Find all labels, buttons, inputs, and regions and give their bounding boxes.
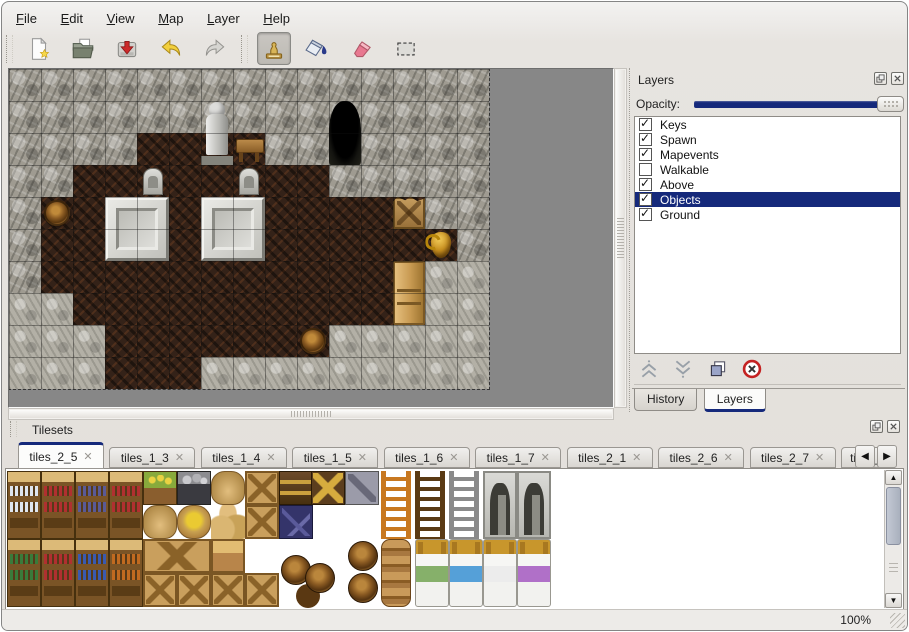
map-tile-wood-floor[interactable] bbox=[169, 197, 201, 229]
canvas-vertical-scrollbar[interactable] bbox=[614, 68, 627, 408]
map-tile-wood-floor[interactable] bbox=[169, 293, 201, 325]
opacity-slider[interactable] bbox=[694, 101, 901, 108]
menu-view-mnemonic: V bbox=[107, 11, 115, 26]
map-tile-wood-floor[interactable] bbox=[169, 165, 201, 197]
map-tile-rock-ground[interactable] bbox=[297, 357, 329, 389]
tileset-tab-bar: tiles_2_5 tiles_1_3 tiles_1_4 tiles_1_5 … bbox=[8, 442, 901, 469]
map-tile-rock-wall[interactable] bbox=[457, 69, 489, 101]
palette-tile-shelf[interactable] bbox=[41, 471, 75, 539]
scrollbar-grip-icon bbox=[889, 563, 898, 575]
map-tile-rock-ground[interactable] bbox=[73, 325, 105, 357]
map-tile-wood-floor[interactable] bbox=[169, 229, 201, 261]
map-tile-wood-floor[interactable] bbox=[169, 133, 201, 165]
menu-file-mnemonic: F bbox=[16, 11, 24, 26]
tab-label: tiles_2_7 bbox=[761, 451, 809, 465]
map-canvas-viewport[interactable] bbox=[8, 68, 614, 408]
close-tab-icon[interactable] bbox=[815, 451, 824, 464]
map-tile-rock-ground[interactable] bbox=[457, 357, 489, 389]
map-tile-wood-floor[interactable] bbox=[233, 261, 265, 293]
map-tile-rock-wall[interactable] bbox=[425, 165, 457, 197]
map-tile-rock-ground[interactable] bbox=[233, 357, 265, 389]
map-tile-wood-floor[interactable] bbox=[41, 229, 73, 261]
close-tab-icon[interactable] bbox=[724, 451, 733, 464]
map-tile-rock-wall[interactable] bbox=[9, 261, 41, 293]
map-tile-wood-floor[interactable] bbox=[105, 325, 137, 357]
palette-tile-crate[interactable] bbox=[177, 573, 211, 607]
map-tile-rock-wall[interactable] bbox=[233, 69, 265, 101]
map-tile-rock-wall[interactable] bbox=[105, 133, 137, 165]
map-tile-rock-wall[interactable] bbox=[265, 69, 297, 101]
map-tile-rock-wall[interactable] bbox=[265, 133, 297, 165]
map-tile-rock-wall[interactable] bbox=[425, 69, 457, 101]
map-tile-wood-floor[interactable] bbox=[265, 325, 297, 357]
map-tile-wood-floor[interactable] bbox=[329, 293, 361, 325]
tab-label: tiles_1_5 bbox=[304, 451, 352, 465]
map-tile-rock-ground[interactable] bbox=[73, 357, 105, 389]
scroll-tabs-left-button[interactable] bbox=[855, 445, 875, 468]
map-tile-rock-wall[interactable] bbox=[9, 101, 41, 133]
map-tile-wood-floor[interactable] bbox=[41, 261, 73, 293]
map-tile-rock-wall[interactable] bbox=[361, 133, 393, 165]
map-tile-wood-floor[interactable] bbox=[361, 293, 393, 325]
map-object-platform[interactable] bbox=[201, 197, 265, 261]
menu-map[interactable]: Map bbox=[148, 8, 193, 29]
scroll-up-button[interactable] bbox=[885, 470, 902, 485]
close-tab-icon[interactable] bbox=[358, 451, 367, 464]
map-object-vase[interactable] bbox=[425, 229, 457, 261]
map-tile-wood-floor[interactable] bbox=[105, 293, 137, 325]
new-file-icon bbox=[26, 36, 52, 62]
map-canvas[interactable] bbox=[9, 69, 489, 389]
layer-visibility-checkbox[interactable] bbox=[639, 178, 652, 191]
map-object-cave[interactable] bbox=[329, 101, 361, 165]
toolbar-drag-handle[interactable] bbox=[241, 35, 248, 63]
palette-tile-bed[interactable] bbox=[415, 539, 449, 607]
map-tile-wood-floor[interactable] bbox=[329, 261, 361, 293]
map-object-table[interactable] bbox=[233, 133, 265, 165]
map-tile-rock-wall[interactable] bbox=[361, 165, 393, 197]
map-tile-rock-wall[interactable] bbox=[9, 165, 41, 197]
map-tile-rock-wall[interactable] bbox=[361, 69, 393, 101]
tileset-tab[interactable]: tiles_2_7 bbox=[750, 447, 836, 468]
palette-tile-crate[interactable] bbox=[245, 505, 279, 539]
close-tab-icon[interactable] bbox=[175, 451, 184, 464]
redo-button[interactable] bbox=[198, 32, 232, 65]
menu-edit[interactable]: Edit bbox=[51, 8, 93, 29]
palette-tile-sackpile[interactable] bbox=[211, 505, 245, 539]
map-tile-wood-floor[interactable] bbox=[73, 293, 105, 325]
map-tile-rock-ground[interactable] bbox=[393, 357, 425, 389]
layer-row[interactable]: Above bbox=[635, 177, 900, 192]
panel-drag-handle[interactable] bbox=[10, 421, 17, 437]
tab-label: tiles_1_3 bbox=[121, 451, 169, 465]
map-tile-rock-ground[interactable] bbox=[361, 357, 393, 389]
tab-label: tiles_1_7 bbox=[487, 451, 535, 465]
map-tile-rock-wall[interactable] bbox=[105, 101, 137, 133]
map-tile-wood-floor[interactable] bbox=[297, 293, 329, 325]
duplicate-layer-button[interactable] bbox=[707, 358, 731, 382]
scroll-down-button[interactable] bbox=[885, 593, 902, 608]
layer-label: Mapevents bbox=[660, 148, 719, 162]
map-tile-rock-wall[interactable] bbox=[9, 197, 41, 229]
map-object-tombstone[interactable] bbox=[233, 165, 265, 197]
map-tile-rock-wall[interactable] bbox=[9, 69, 41, 101]
map-tile-wood-floor[interactable] bbox=[73, 197, 105, 229]
scrollbar-grip-icon bbox=[617, 218, 624, 258]
tab-label: tiles_2_1 bbox=[578, 451, 626, 465]
palette-tile-chestdark[interactable] bbox=[279, 471, 313, 505]
map-tile-rock-wall[interactable] bbox=[41, 133, 73, 165]
map-tile-rock-wall[interactable] bbox=[73, 69, 105, 101]
map-tile-rock-ground[interactable] bbox=[9, 357, 41, 389]
tab-label: tiles_2_6 bbox=[670, 451, 718, 465]
tileset-tab[interactable]: tiles_1_3 bbox=[109, 447, 195, 468]
close-tab-icon[interactable] bbox=[266, 451, 275, 464]
map-tile-rock-wall[interactable] bbox=[457, 133, 489, 165]
palette-tile-bed[interactable] bbox=[517, 539, 551, 607]
menu-file-label: ile bbox=[24, 11, 37, 26]
zoom-level-label: 100% bbox=[840, 613, 871, 627]
map-object-statue[interactable] bbox=[201, 101, 233, 165]
layer-visibility-checkbox[interactable] bbox=[639, 163, 652, 176]
opacity-label: Opacity: bbox=[636, 97, 692, 111]
map-tile-wood-floor[interactable] bbox=[393, 229, 425, 261]
move-layer-down-button[interactable] bbox=[672, 358, 696, 382]
delete-layer-button[interactable] bbox=[741, 358, 765, 382]
map-tile-wood-floor[interactable] bbox=[265, 261, 297, 293]
layer-row[interactable]: Objects bbox=[635, 192, 900, 207]
layer-row[interactable]: Ground bbox=[635, 207, 900, 222]
float-panel-button[interactable] bbox=[870, 420, 883, 433]
map-tile-rock-wall[interactable] bbox=[297, 133, 329, 165]
layer-row[interactable]: Mapevents bbox=[635, 147, 900, 162]
palette-tile-pots[interactable] bbox=[381, 539, 411, 607]
eraser-tool-button[interactable] bbox=[345, 32, 379, 65]
menu-help-label: elp bbox=[273, 11, 290, 26]
palette-tile-crate[interactable] bbox=[245, 573, 279, 607]
map-tile-wood-floor[interactable] bbox=[137, 133, 169, 165]
menu-layer[interactable]: Layer bbox=[197, 8, 250, 29]
map-tile-rock-wall[interactable] bbox=[393, 69, 425, 101]
layer-label: Spawn bbox=[660, 133, 697, 147]
map-object-barrel[interactable] bbox=[41, 197, 73, 229]
map-tile-rock-wall[interactable] bbox=[73, 101, 105, 133]
menu-file[interactable]: File bbox=[6, 8, 47, 29]
map-tile-wood-floor[interactable] bbox=[233, 293, 265, 325]
close-tab-icon[interactable] bbox=[632, 451, 641, 464]
map-tile-rock-wall[interactable] bbox=[457, 197, 489, 229]
undo-icon bbox=[158, 36, 184, 62]
tile-palette-grid bbox=[7, 471, 883, 609]
map-tile-wood-floor[interactable] bbox=[329, 197, 361, 229]
map-tile-wood-floor[interactable] bbox=[361, 261, 393, 293]
palette-tile-shelf[interactable] bbox=[75, 539, 109, 607]
layer-row[interactable]: Keys bbox=[635, 117, 900, 132]
layers-panel-title: Layers bbox=[638, 73, 674, 87]
map-tile-rock-ground[interactable] bbox=[201, 357, 233, 389]
map-tile-rock-ground[interactable] bbox=[41, 293, 73, 325]
close-tab-icon[interactable] bbox=[541, 451, 550, 464]
map-tile-wood-floor[interactable] bbox=[297, 197, 329, 229]
map-tile-rock-ground[interactable] bbox=[9, 293, 41, 325]
palette-tile-chestgold[interactable] bbox=[311, 471, 345, 505]
layer-visibility-checkbox[interactable] bbox=[639, 148, 652, 161]
map-tile-rock-wall[interactable] bbox=[169, 101, 201, 133]
tab-label: History bbox=[647, 392, 684, 406]
map-tile-rock-wall[interactable] bbox=[425, 133, 457, 165]
tab-history[interactable]: History bbox=[634, 389, 697, 411]
window-resize-grip[interactable] bbox=[890, 613, 905, 628]
map-tile-rock-wall[interactable] bbox=[425, 101, 457, 133]
undo-button[interactable] bbox=[154, 32, 188, 65]
map-tile-wood-floor[interactable] bbox=[137, 293, 169, 325]
fill-tool-icon bbox=[305, 36, 331, 62]
map-tile-wood-floor[interactable] bbox=[361, 197, 393, 229]
tileset-tab[interactable]: tiles_1_7 bbox=[475, 447, 561, 468]
map-tile-wood-floor[interactable] bbox=[201, 325, 233, 357]
palette-tile-shelf[interactable] bbox=[109, 539, 143, 607]
map-tile-rock-wall[interactable] bbox=[137, 69, 169, 101]
map-object-crate-broken[interactable] bbox=[393, 197, 425, 229]
map-object-tombstone[interactable] bbox=[137, 165, 169, 197]
map-tile-wood-floor[interactable] bbox=[73, 229, 105, 261]
map-object-platform[interactable] bbox=[105, 197, 169, 261]
map-tile-wood-floor[interactable] bbox=[361, 229, 393, 261]
map-tile-wood-floor[interactable] bbox=[105, 165, 137, 197]
layer-label: Above bbox=[660, 178, 694, 192]
palette-tile-ladder[interactable] bbox=[449, 471, 479, 539]
palette-tile-crate[interactable] bbox=[143, 573, 177, 607]
map-tile-rock-wall[interactable] bbox=[265, 101, 297, 133]
layer-list: Keys Spawn Mapevents Walkable Above Obje… bbox=[634, 116, 901, 354]
palette-tile-planter[interactable] bbox=[143, 471, 177, 505]
tileset-tab[interactable]: tiles_1_5 bbox=[292, 447, 378, 468]
map-tile-rock-ground[interactable] bbox=[265, 357, 297, 389]
map-tile-rock-wall[interactable] bbox=[457, 229, 489, 261]
select-tool-button[interactable] bbox=[389, 32, 423, 65]
map-tile-rock-wall[interactable] bbox=[41, 101, 73, 133]
menu-map-mnemonic: M bbox=[158, 11, 169, 26]
palette-tile-shelf[interactable] bbox=[109, 471, 143, 539]
tab-layers[interactable]: Layers bbox=[704, 389, 766, 412]
map-tile-wood-floor[interactable] bbox=[329, 229, 361, 261]
eraser-tool-icon bbox=[349, 36, 375, 62]
map-tile-rock-ground[interactable] bbox=[41, 325, 73, 357]
map-tile-rock-wall[interactable] bbox=[457, 101, 489, 133]
palette-tile-bed[interactable] bbox=[449, 539, 483, 607]
layer-label: Objects bbox=[660, 193, 701, 207]
save-button[interactable] bbox=[110, 32, 144, 65]
map-tile-rock-wall[interactable] bbox=[105, 69, 137, 101]
fill-tool-button[interactable] bbox=[301, 32, 335, 65]
map-tile-wood-floor[interactable] bbox=[201, 293, 233, 325]
map-tile-rock-ground[interactable] bbox=[41, 357, 73, 389]
select-tool-icon bbox=[393, 36, 419, 62]
map-tile-rock-ground[interactable] bbox=[425, 293, 457, 325]
map-tile-rock-wall[interactable] bbox=[393, 133, 425, 165]
palette-tile-ladder[interactable] bbox=[415, 471, 445, 539]
map-tile-wood-floor[interactable] bbox=[137, 325, 169, 357]
toolbar bbox=[2, 31, 907, 66]
map-tile-rock-wall[interactable] bbox=[457, 165, 489, 197]
layer-visibility-checkbox[interactable] bbox=[639, 118, 652, 131]
map-tile-rock-ground[interactable] bbox=[457, 261, 489, 293]
palette-tile-orecart[interactable] bbox=[177, 471, 211, 505]
save-icon bbox=[114, 36, 140, 62]
map-tile-wood-floor[interactable] bbox=[105, 357, 137, 389]
layers-panel-header: Layers bbox=[634, 70, 905, 90]
map-tile-rock-wall[interactable] bbox=[233, 101, 265, 133]
tileset-tab[interactable]: tiles_1_6 bbox=[384, 447, 470, 468]
open-file-button[interactable] bbox=[66, 32, 100, 65]
map-tile-wood-floor[interactable] bbox=[265, 197, 297, 229]
map-tile-rock-ground[interactable] bbox=[425, 261, 457, 293]
map-tile-wood-floor[interactable] bbox=[105, 261, 137, 293]
map-tile-rock-ground[interactable] bbox=[329, 357, 361, 389]
map-tile-wood-floor[interactable] bbox=[265, 165, 297, 197]
map-tile-rock-wall[interactable] bbox=[201, 69, 233, 101]
map-object-cabinet[interactable] bbox=[393, 261, 425, 325]
palette-tile-barrel2[interactable] bbox=[345, 539, 379, 607]
palette-tile-sackbig[interactable] bbox=[143, 505, 177, 539]
map-tile-rock-wall[interactable] bbox=[297, 69, 329, 101]
tab-label: tiles_1_4 bbox=[212, 451, 260, 465]
scrollbar-grip-icon bbox=[291, 411, 331, 417]
layer-label: Keys bbox=[660, 118, 687, 132]
map-tile-rock-wall[interactable] bbox=[393, 165, 425, 197]
opacity-row: Opacity: bbox=[636, 94, 903, 114]
opacity-slider-handle[interactable] bbox=[877, 96, 904, 112]
map-tile-wood-floor[interactable] bbox=[201, 165, 233, 197]
palette-tile-door[interactable] bbox=[517, 471, 551, 539]
palette-tile-crate[interactable] bbox=[143, 539, 211, 573]
map-tile-wood-floor[interactable] bbox=[233, 325, 265, 357]
map-tile-rock-wall[interactable] bbox=[41, 69, 73, 101]
map-tile-wood-floor[interactable] bbox=[169, 325, 201, 357]
stamp-tool-icon bbox=[261, 36, 287, 62]
tab-label: tiles_2_5 bbox=[29, 450, 77, 464]
map-tile-rock-ground[interactable] bbox=[393, 325, 425, 357]
map-tile-wood-floor[interactable] bbox=[265, 229, 297, 261]
map-tile-rock-ground[interactable] bbox=[425, 325, 457, 357]
tile-palette bbox=[5, 468, 904, 610]
status-bar: 100% bbox=[2, 609, 907, 630]
palette-tile-sackopen[interactable] bbox=[177, 505, 211, 539]
palette-tile-shelf[interactable] bbox=[7, 471, 41, 539]
map-tile-wood-floor[interactable] bbox=[137, 357, 169, 389]
tileset-tab[interactable]: tiles_2_1 bbox=[567, 447, 653, 468]
map-tile-wood-floor[interactable] bbox=[169, 261, 201, 293]
close-tab-icon[interactable] bbox=[83, 450, 92, 463]
map-tile-rock-wall[interactable] bbox=[425, 197, 457, 229]
map-tile-rock-wall[interactable] bbox=[329, 165, 361, 197]
map-tile-wood-floor[interactable] bbox=[297, 229, 329, 261]
map-tile-rock-ground[interactable] bbox=[425, 357, 457, 389]
layer-actions-toolbar bbox=[634, 358, 901, 385]
map-tile-rock-wall[interactable] bbox=[393, 101, 425, 133]
map-tile-wood-floor[interactable] bbox=[73, 261, 105, 293]
move-layer-up-button[interactable] bbox=[638, 358, 662, 382]
canvas-horizontal-scrollbar[interactable] bbox=[8, 408, 614, 420]
map-tile-rock-ground[interactable] bbox=[9, 325, 41, 357]
scrollbar-thumb[interactable] bbox=[886, 487, 901, 545]
map-tile-rock-wall[interactable] bbox=[137, 101, 169, 133]
map-tile-rock-ground[interactable] bbox=[457, 325, 489, 357]
palette-tile-ladder[interactable] bbox=[381, 471, 411, 539]
map-tile-rock-wall[interactable] bbox=[361, 101, 393, 133]
stamp-tool-button[interactable] bbox=[257, 32, 291, 65]
palette-tile-shelf[interactable] bbox=[75, 471, 109, 539]
layer-visibility-checkbox[interactable] bbox=[639, 208, 652, 221]
map-tile-rock-wall[interactable] bbox=[9, 133, 41, 165]
map-tile-wood-floor[interactable] bbox=[137, 261, 169, 293]
close-tab-icon[interactable] bbox=[449, 451, 458, 464]
map-tile-wood-floor[interactable] bbox=[201, 261, 233, 293]
map-tile-rock-wall[interactable] bbox=[41, 165, 73, 197]
layer-row[interactable]: Walkable bbox=[635, 162, 900, 177]
palette-tile-door[interactable] bbox=[483, 471, 517, 539]
palette-tile-crate[interactable] bbox=[245, 471, 279, 505]
layer-visibility-checkbox[interactable] bbox=[639, 133, 652, 146]
close-panel-button[interactable] bbox=[887, 420, 900, 433]
layer-row[interactable]: Spawn bbox=[635, 132, 900, 147]
map-tile-wood-floor[interactable] bbox=[297, 261, 329, 293]
map-tile-wood-floor[interactable] bbox=[169, 357, 201, 389]
close-panel-button[interactable] bbox=[891, 72, 904, 85]
redo-icon bbox=[202, 36, 228, 62]
menu-view-label: iew bbox=[115, 11, 135, 26]
map-tile-rock-wall[interactable] bbox=[297, 101, 329, 133]
palette-tile-chest[interactable] bbox=[211, 539, 245, 573]
palette-tile-bed[interactable] bbox=[483, 539, 517, 607]
map-tile-rock-wall[interactable] bbox=[169, 69, 201, 101]
menu-edit-mnemonic: E bbox=[61, 11, 70, 26]
map-tile-rock-ground[interactable] bbox=[457, 293, 489, 325]
layer-visibility-checkbox[interactable] bbox=[639, 193, 652, 206]
menu-view[interactable]: View bbox=[97, 8, 145, 29]
map-tile-wood-floor[interactable] bbox=[73, 165, 105, 197]
panel-splitter[interactable] bbox=[629, 68, 633, 412]
toolbar-drag-handle[interactable] bbox=[6, 35, 13, 63]
map-tile-rock-ground[interactable] bbox=[361, 325, 393, 357]
map-tile-rock-wall[interactable] bbox=[329, 69, 361, 101]
palette-tile-shelf[interactable] bbox=[41, 539, 75, 607]
map-tile-rock-wall[interactable] bbox=[73, 133, 105, 165]
map-tile-wood-floor[interactable] bbox=[265, 293, 297, 325]
palette-vertical-scrollbar[interactable] bbox=[884, 470, 902, 608]
palette-tile-barrelcluster[interactable] bbox=[279, 551, 339, 609]
scroll-tabs-right-button[interactable] bbox=[877, 445, 897, 468]
palette-tile-sack[interactable] bbox=[211, 471, 245, 505]
palette-tile-shelf[interactable] bbox=[7, 539, 41, 607]
map-tile-rock-ground[interactable] bbox=[329, 325, 361, 357]
new-file-button[interactable] bbox=[22, 32, 56, 65]
tileset-tab[interactable]: tiles_2_5 bbox=[18, 442, 104, 469]
tileset-tab[interactable]: tiles_1_4 bbox=[201, 447, 287, 468]
menu-help[interactable]: Help bbox=[253, 8, 300, 29]
layer-label: Ground bbox=[660, 208, 700, 222]
float-panel-button[interactable] bbox=[874, 72, 887, 85]
map-tile-wood-floor[interactable] bbox=[297, 165, 329, 197]
map-object-barrel[interactable] bbox=[297, 325, 329, 357]
palette-tile-cratemark[interactable] bbox=[345, 471, 379, 505]
tileset-tab[interactable]: tiles_2_6 bbox=[658, 447, 744, 468]
map-tile-rock-wall[interactable] bbox=[9, 229, 41, 261]
palette-tile-cratenavy[interactable] bbox=[279, 505, 313, 539]
tilesets-panel-title: Tilesets bbox=[32, 423, 73, 437]
menu-help-mnemonic: H bbox=[263, 11, 272, 26]
palette-tile-crate[interactable] bbox=[211, 573, 245, 607]
